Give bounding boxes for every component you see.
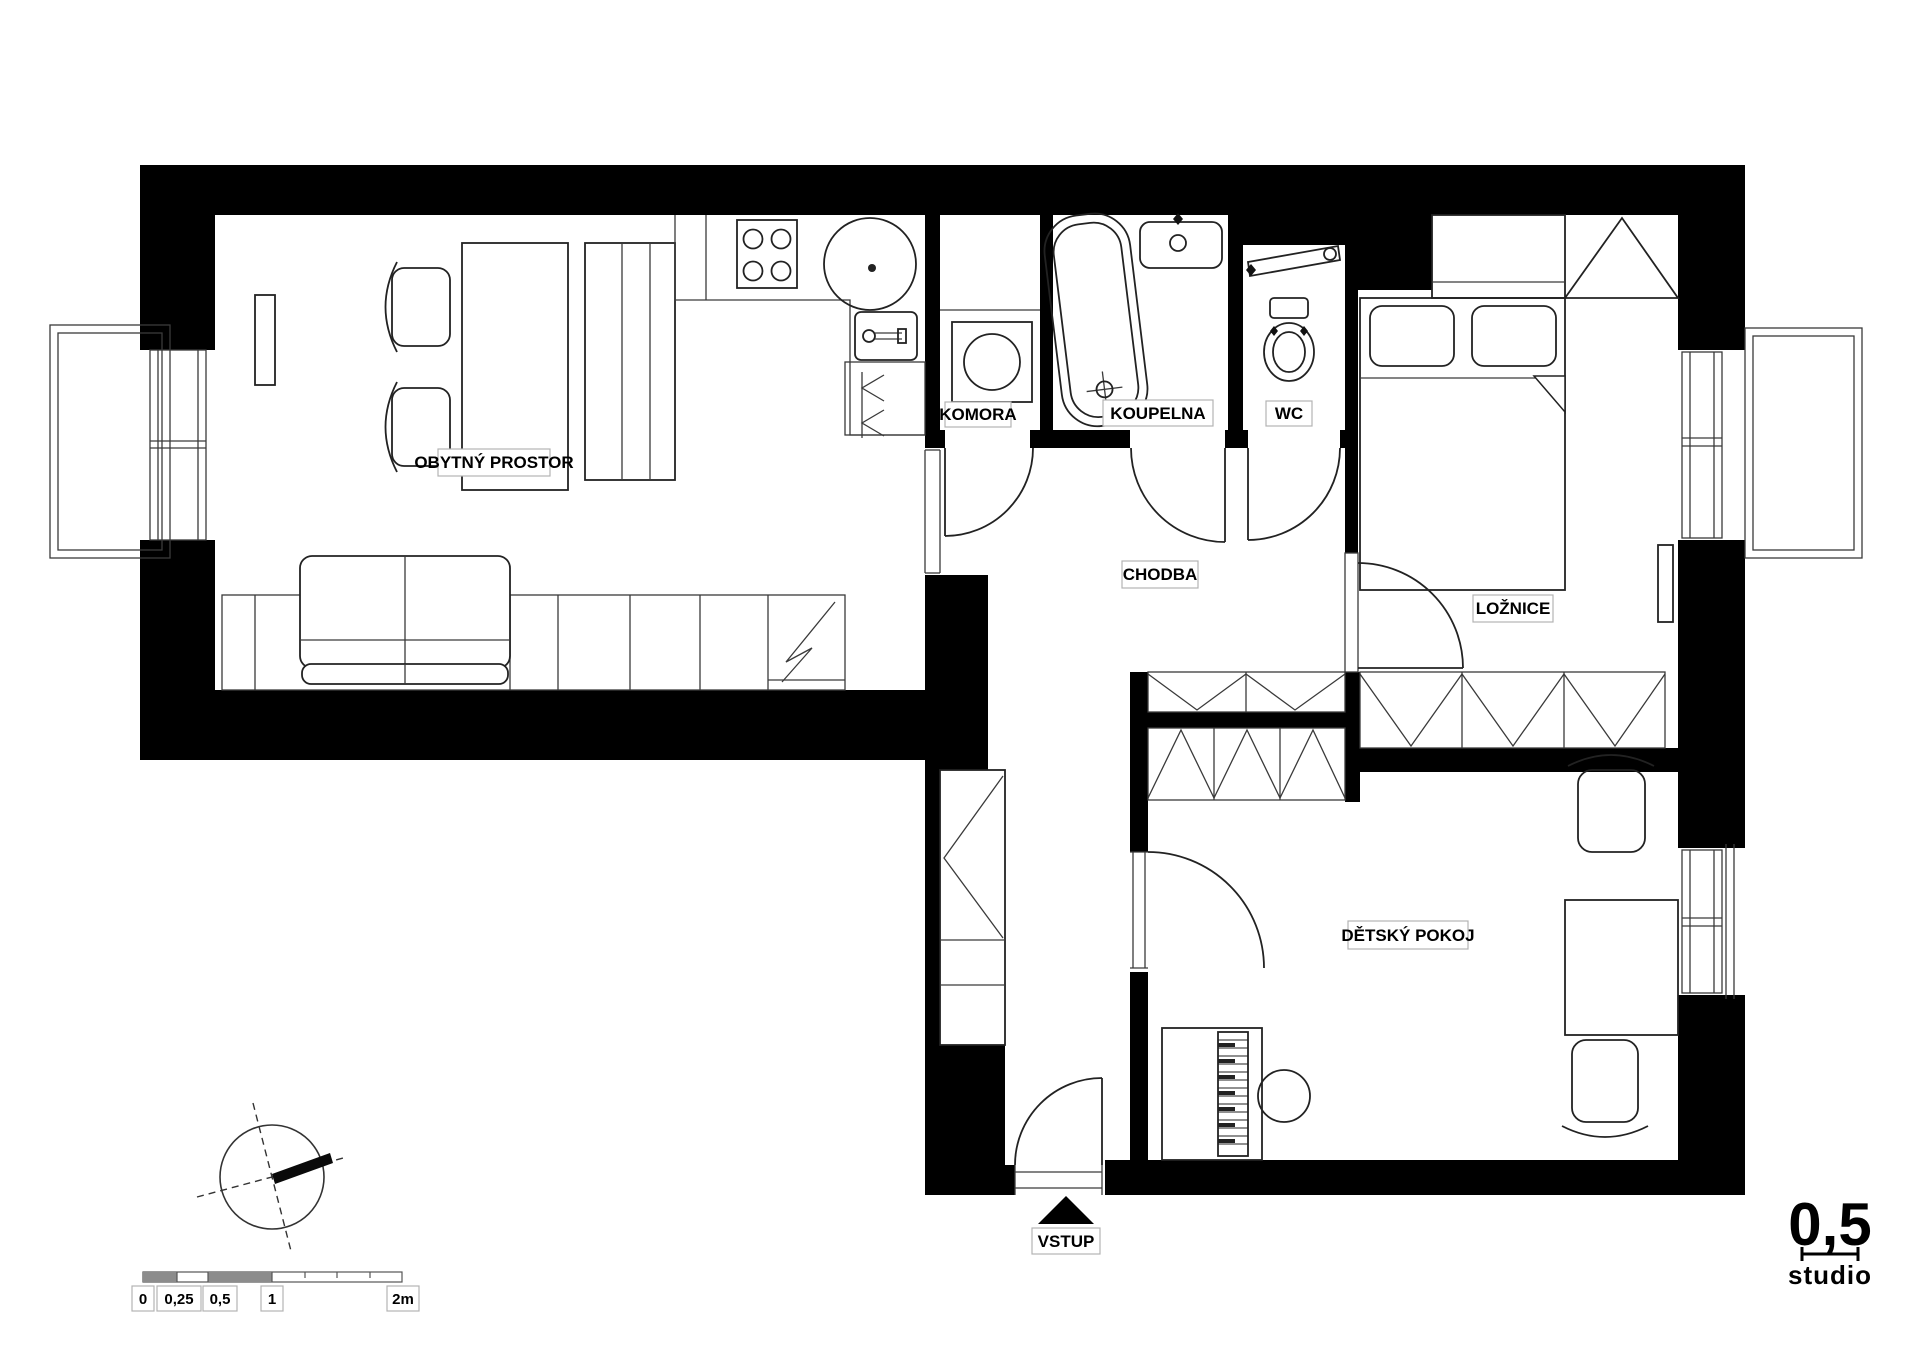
label-living: OBYTNÝ PROSTOR [414,449,573,476]
label-bedroom-text: LOŽNICE [1476,599,1551,618]
passage-living-hall-icon [925,450,940,573]
wall-bedroom-block [1358,215,1432,290]
window-bedroom-icon [1682,352,1722,538]
bathroom-door-icon [1131,448,1225,542]
corner-carousel-icon [824,218,916,310]
pantry-door-icon [945,448,1033,536]
wall-band-stub [925,430,945,448]
builtin-wardrobes [1148,672,1665,800]
wall-bottom-left [925,1165,1015,1195]
kids-room [1130,755,1678,1160]
wall-entry-block [925,1045,1005,1165]
kitchen-tall-units-icon [585,243,675,480]
scale-bar: 0 0,25 0,5 1 2m [132,1272,419,1311]
entrance-marker: VSTUP [1032,1196,1100,1254]
wall-left-upper [140,165,215,350]
piano-icon [1162,1028,1310,1160]
entrance-door-icon [1015,1078,1102,1195]
stove-icon [737,220,797,288]
wall-wardrobe-vertical [1345,672,1360,802]
pillow-icon [1370,306,1454,366]
wall-bottom-right [1105,1160,1745,1195]
wall-bath-wc [1228,215,1243,430]
wall-hall-left-thick [925,575,988,770]
label-bedroom: LOŽNICE [1473,595,1553,622]
wall-band-4 [1340,430,1358,448]
corner-basin-icon [1246,246,1340,276]
window-living-icon [150,350,206,540]
desk-icon [1565,900,1678,1035]
wardrobe-hall-side-icon [1148,672,1345,712]
wall-right-mid [1678,540,1745,848]
scale-025: 0,25 [164,1291,193,1308]
wall-wc-top-block [1243,215,1345,245]
kitchen-counter-icon [675,215,925,435]
scale-05: 0,5 [210,1291,231,1308]
wall-top [140,165,1745,215]
floor-plan-drawing: OBYTNÝ PROSTOR KOMORA KOUPELNA WC CHODBA… [0,0,1920,1359]
label-kids-room: DĚTSKÝ POKOJ [1341,921,1474,949]
wall-bedroom-kids [1360,748,1685,772]
hall-cabinet-icon [940,770,1005,1045]
double-bed-icon [1360,298,1565,590]
washing-machine-icon [952,322,1032,402]
wall-right-upper [1678,215,1745,350]
scale-labels: 0 0,25 0,5 1 2m [132,1286,419,1311]
toilet-icon [1264,298,1314,381]
sofa-icon [300,556,510,684]
wc-door-icon [1248,448,1340,540]
tv-unit-zigzag-icon [782,602,835,682]
label-bathroom: KOUPELNA [1103,400,1213,426]
wall-hall-left-thin [925,770,940,1045]
label-pantry: KOMORA [939,402,1016,427]
bedroom-door-icon [1345,553,1463,672]
wall-living-bottom [140,690,930,760]
logo-name-text: studio [1788,1260,1872,1290]
entrance-arrow-icon [1038,1196,1094,1224]
washbasin-icon [1140,213,1222,268]
wall-wardrobe-strip [1143,712,1345,728]
wall-kitchen-pantry [925,215,940,430]
label-entrance-text: VSTUP [1038,1232,1095,1251]
label-hallway-text: CHODBA [1123,565,1198,584]
wc-room [1246,246,1340,540]
kids-door-icon [1130,852,1264,968]
bedroom-wardrobe-icon [1432,215,1678,298]
cabinet-arrows-icon [845,362,925,438]
radiator-living-icon [255,295,275,385]
label-wc: WC [1266,401,1312,426]
wall-band-3 [1225,430,1248,448]
wardrobe-bedroom-side-icon [1360,672,1665,748]
kitchen-sink-icon [855,312,917,360]
label-kids-room-text: DĚTSKÝ POKOJ [1341,926,1474,945]
bathroom-room [1040,209,1225,542]
wall-hall-right-lower [1130,972,1148,1162]
dining-chair-icon [386,262,451,352]
wall-bedroom-left [1345,448,1358,553]
wall-pantry-bath [1040,215,1053,430]
compass-icon [197,1103,347,1251]
wall-hall-right-upper [1130,672,1148,852]
scale-0: 0 [139,1291,147,1308]
piano-stool-icon [1258,1070,1310,1122]
wardrobe-kids-side-icon [1148,728,1345,800]
label-hallway: CHODBA [1122,561,1198,588]
bathtub-icon [1040,209,1151,430]
balcony-bedroom-icon [1745,328,1862,558]
label-bathroom-text: KOUPELNA [1110,404,1205,423]
wall-wc-right [1345,215,1358,430]
wall-right-lower [1678,995,1745,1195]
scale-1: 1 [268,1291,276,1308]
window-kids-icon [1682,844,1734,999]
living-room [222,215,940,690]
studio-logo: 0,5 studio [1788,1191,1872,1290]
label-wc-text: WC [1275,404,1303,423]
label-pantry-text: KOMORA [939,405,1016,424]
radiator-bedroom-icon [1658,545,1673,622]
wall-band-2 [1030,430,1130,448]
desk-chair-icon [1562,1040,1648,1137]
label-living-text: OBYTNÝ PROSTOR [414,453,573,472]
floor-plan-page: OBYTNÝ PROSTOR KOMORA KOUPELNA WC CHODBA… [0,0,1920,1359]
pillow-icon [1472,306,1556,366]
blanket-fold-icon [1534,376,1565,412]
scale-2m: 2m [392,1291,414,1308]
